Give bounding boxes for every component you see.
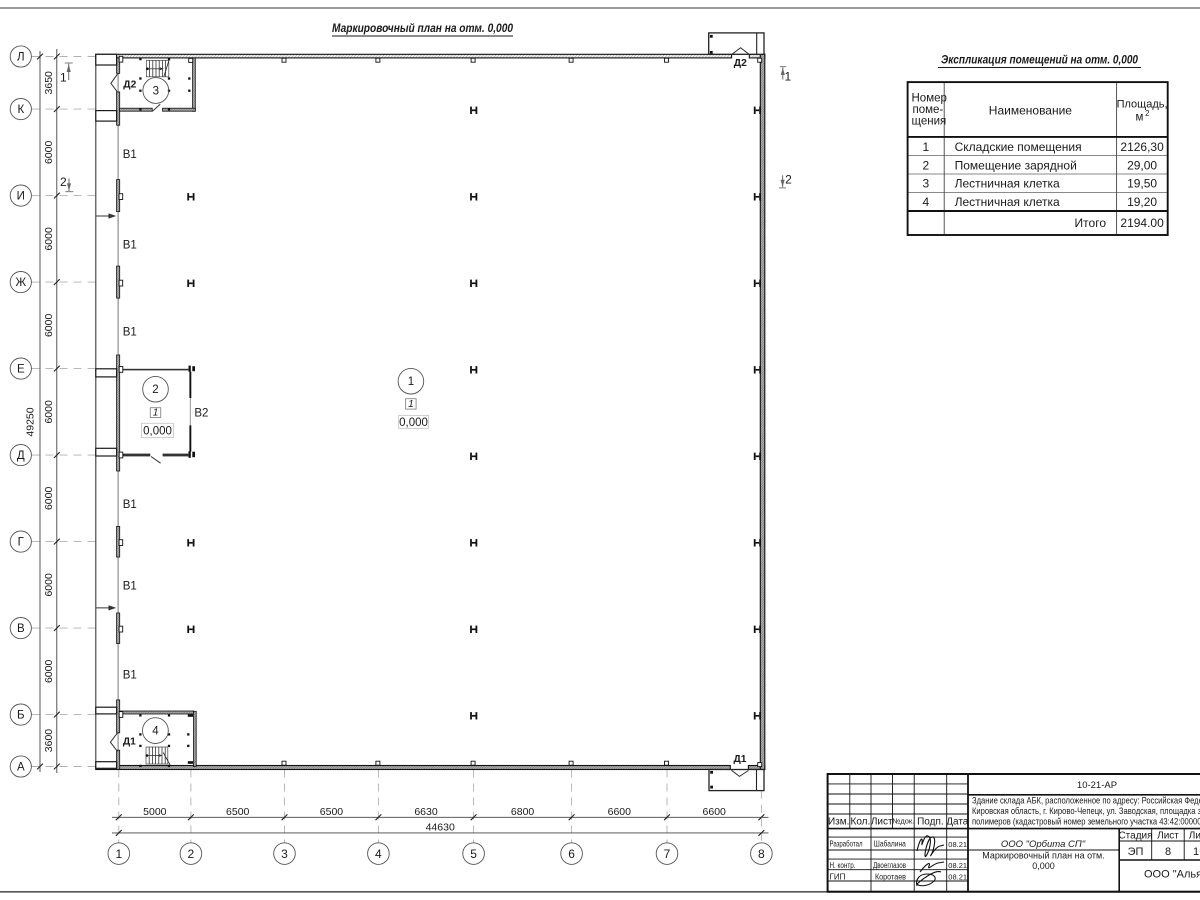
svg-text:А: А [17,762,25,774]
svg-text:6000: 6000 [43,227,55,251]
svg-text:Д: Д [17,450,25,462]
svg-text:В: В [17,623,25,635]
svg-text:3: 3 [923,177,930,191]
svg-text:08.21: 08.21 [948,861,967,870]
svg-text:1: 1 [784,70,791,84]
svg-text:Кировская область, г. Кирово-Ч: Кировская область, г. Кирово-Чепецк, ул.… [972,806,1200,816]
svg-text:Подп.: Подп. [917,817,944,828]
svg-text:1: 1 [60,71,67,85]
svg-text:6800: 6800 [511,806,535,818]
svg-text:В1: В1 [123,240,137,252]
svg-text:2: 2 [1145,109,1150,118]
svg-text:3600: 3600 [43,729,55,753]
svg-text:4: 4 [923,195,930,209]
svg-text:В1: В1 [123,499,137,511]
svg-text:6630: 6630 [414,806,438,818]
svg-text:3: 3 [153,86,159,98]
svg-text:Маркировочный план на отм.: Маркировочный план на отм. [982,851,1104,861]
svg-text:щения: щения [912,116,947,128]
svg-text:6600: 6600 [703,806,727,818]
svg-text:6500: 6500 [226,806,250,818]
svg-text:6600: 6600 [608,806,632,818]
svg-text:К: К [17,104,24,116]
svg-text:Разработал: Разработал [830,840,863,849]
svg-text:Номер: Номер [912,93,947,105]
svg-text:29,00: 29,00 [1127,158,1157,172]
svg-text:2: 2 [60,175,67,189]
svg-text:2: 2 [923,158,930,172]
svg-text:Лестничная клетка: Лестничная клетка [955,195,1060,209]
svg-text:6000: 6000 [43,573,55,597]
svg-text:Лист: Лист [1157,831,1179,842]
svg-text:8: 8 [1165,846,1171,858]
svg-text:6000: 6000 [43,487,55,511]
svg-text:44630: 44630 [426,822,455,834]
svg-text:1: 1 [923,140,930,154]
svg-text:2126,30: 2126,30 [1120,140,1164,154]
svg-text:Н. контр.: Н. контр. [830,861,856,870]
svg-text:Итого: Итого [1075,216,1107,230]
svg-text:Г: Г [18,537,25,549]
svg-text:0,000: 0,000 [399,417,428,429]
svg-text:08.21: 08.21 [948,840,967,849]
svg-text:ООО "Альянс Групп": ООО "Альянс Групп" [1144,869,1200,881]
svg-text:5000: 5000 [143,806,167,818]
svg-text:1: 1 [153,408,159,419]
svg-text:3: 3 [281,847,288,861]
svg-text:Складские помещения: Складские помещения [955,140,1082,154]
svg-text:В1: В1 [123,670,137,682]
svg-text:ООО "Орбита СП": ООО "Орбита СП" [1001,839,1086,850]
svg-text:Д2: Д2 [123,79,136,91]
svg-text:Лестничная клетка: Лестничная клетка [955,177,1060,191]
svg-text:Ж: Ж [15,277,26,289]
svg-text:Б: Б [17,710,25,722]
svg-text:08.21: 08.21 [948,873,967,882]
svg-text:Коротаев: Коротаев [875,872,906,881]
svg-text:Дата: Дата [946,817,969,828]
svg-text:Наименование: Наименование [989,104,1073,118]
svg-text:19,50: 19,50 [1127,177,1157,191]
svg-text:1: 1 [115,847,122,861]
svg-text:3650: 3650 [43,71,55,95]
svg-text:№док.: №док. [892,817,914,826]
svg-text:1: 1 [408,399,414,410]
svg-text:2: 2 [152,384,158,396]
svg-text:Д1: Д1 [123,735,136,747]
svg-text:4: 4 [152,726,159,738]
svg-text:0,000: 0,000 [143,425,172,437]
svg-text:Листов: Листов [1189,831,1200,842]
svg-text:Экспликация помещений на отм.: Экспликация помещений на отм. 0,000 [941,55,1139,67]
svg-text:Стадия: Стадия [1118,831,1152,842]
svg-text:10-21-АР: 10-21-АР [1077,780,1117,791]
svg-text:8: 8 [758,847,765,861]
svg-text:6500: 6500 [320,806,344,818]
svg-text:Помещение зарядной: Помещение зарядной [955,158,1077,172]
svg-text:4: 4 [375,847,382,861]
svg-text:49250: 49250 [25,407,37,436]
svg-text:В1: В1 [123,149,137,161]
svg-text:Площадь,: Площадь, [1117,99,1168,111]
svg-text:Маркировочный план на отм. 0,0: Маркировочный план на отм. 0,000 [332,23,514,35]
svg-text:6: 6 [568,847,575,861]
svg-text:ЭП: ЭП [1128,846,1144,858]
svg-text:Двоеглазов: Двоеглазов [873,861,906,870]
svg-text:6000: 6000 [43,314,55,338]
svg-text:6000: 6000 [43,660,55,684]
svg-text:Здание склада АБК, расположенн: Здание склада АБК, расположенное по адре… [972,796,1200,806]
svg-text:В2: В2 [194,408,208,420]
svg-text:Шабалина: Шабалина [874,840,906,849]
svg-text:2194.00: 2194.00 [1120,216,1164,230]
svg-text:полимеров (кадастровый номер з: полимеров (кадастровый номер земельного … [972,817,1200,827]
svg-text:Изм.: Изм. [828,817,849,828]
svg-text:Д2: Д2 [734,57,747,69]
svg-text:Л: Л [17,52,25,64]
svg-text:6000: 6000 [43,400,55,424]
svg-text:В1: В1 [123,581,137,593]
svg-text:В1: В1 [123,327,137,339]
svg-text:Лист: Лист [871,817,893,828]
svg-text:6000: 6000 [43,141,55,165]
svg-text:И: И [17,191,25,203]
svg-text:м: м [1136,112,1144,124]
svg-text:Д1: Д1 [734,753,747,765]
svg-text:5: 5 [470,847,477,861]
svg-text:1: 1 [1193,846,1199,858]
svg-text:2: 2 [188,847,195,861]
svg-text:0,000: 0,000 [1032,861,1055,871]
svg-text:ГИП: ГИП [830,872,846,881]
svg-text:2: 2 [785,173,792,187]
svg-text:Кол.: Кол. [851,817,871,828]
svg-text:поме-: поме- [913,104,944,116]
svg-text:1: 1 [408,376,414,388]
svg-text:7: 7 [664,847,671,861]
svg-text:19,20: 19,20 [1127,195,1157,209]
svg-text:Е: Е [17,364,25,376]
